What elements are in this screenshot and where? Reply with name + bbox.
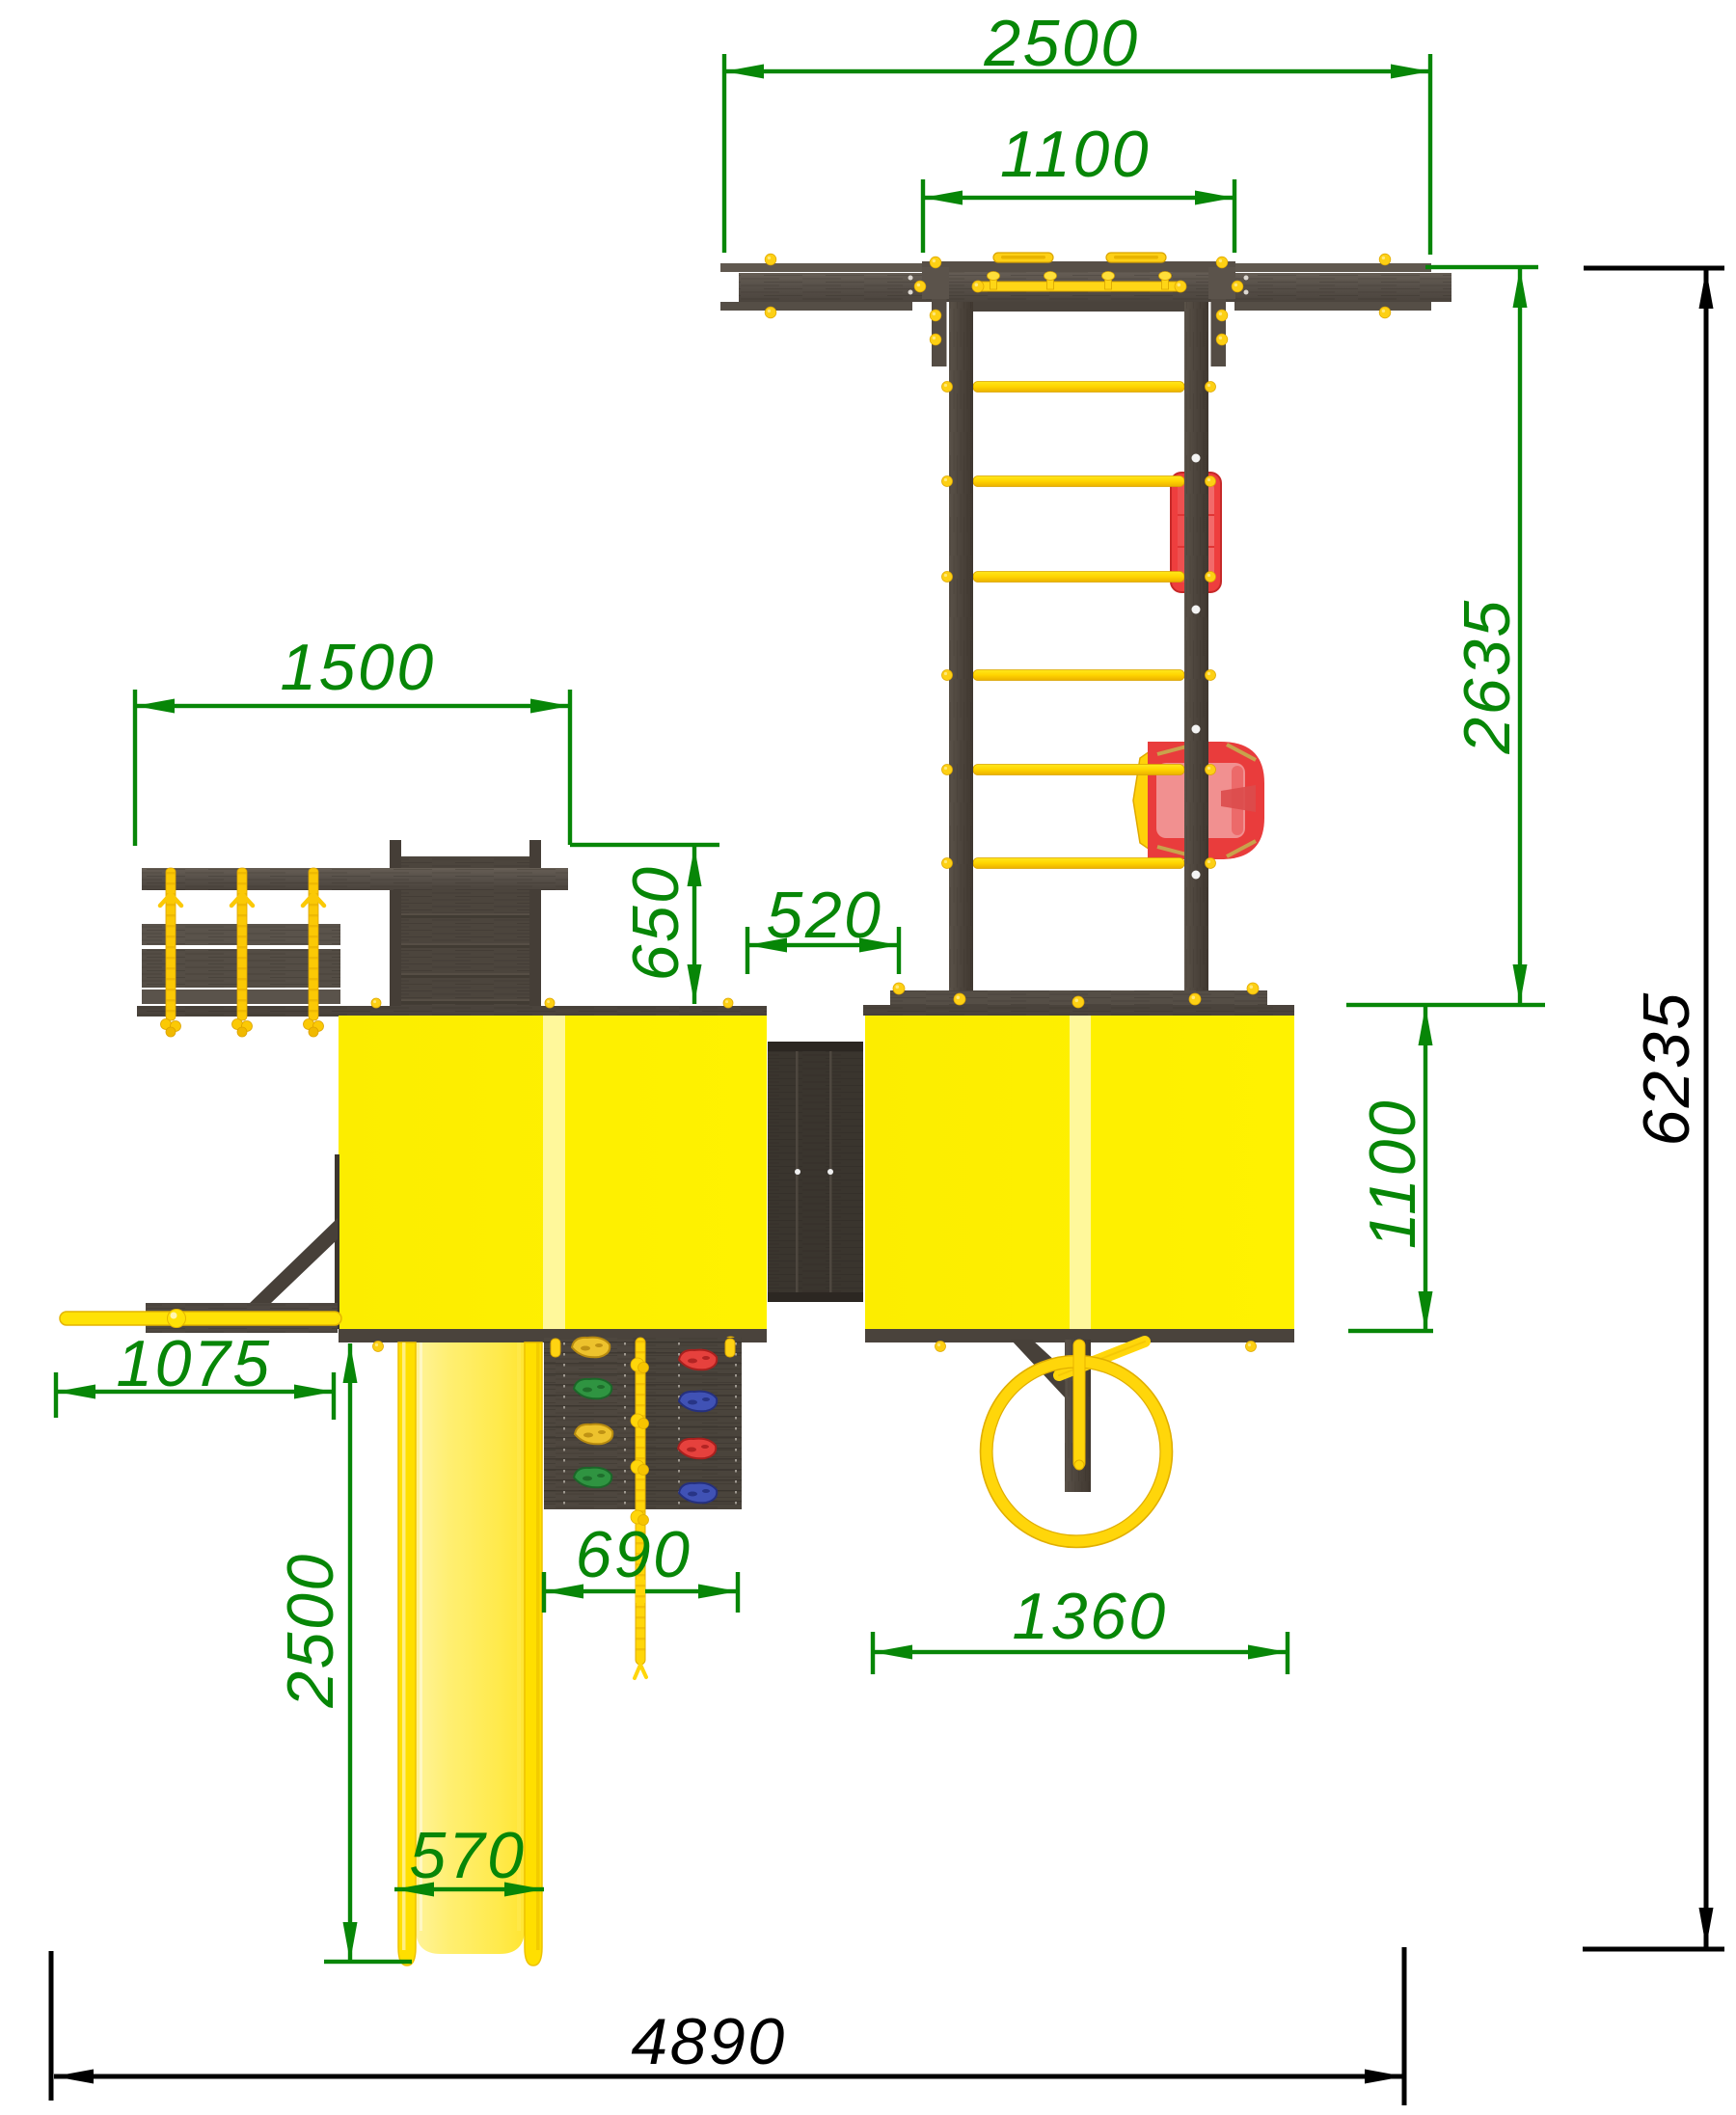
svg-text:6235: 6235	[1630, 990, 1703, 1146]
svg-text:2500: 2500	[274, 1552, 347, 1708]
svg-text:1500: 1500	[280, 631, 435, 704]
svg-text:2500: 2500	[983, 7, 1139, 80]
svg-text:1360: 1360	[1012, 1580, 1167, 1653]
svg-text:4890: 4890	[631, 2005, 786, 2078]
svg-text:520: 520	[767, 879, 883, 952]
svg-text:650: 650	[619, 865, 692, 982]
svg-text:2635: 2635	[1451, 598, 1524, 754]
svg-text:570: 570	[410, 1819, 527, 1892]
svg-text:1075: 1075	[116, 1327, 271, 1400]
svg-text:1100: 1100	[1356, 1098, 1429, 1249]
svg-text:690: 690	[576, 1518, 692, 1591]
svg-text:1100: 1100	[1000, 118, 1151, 191]
